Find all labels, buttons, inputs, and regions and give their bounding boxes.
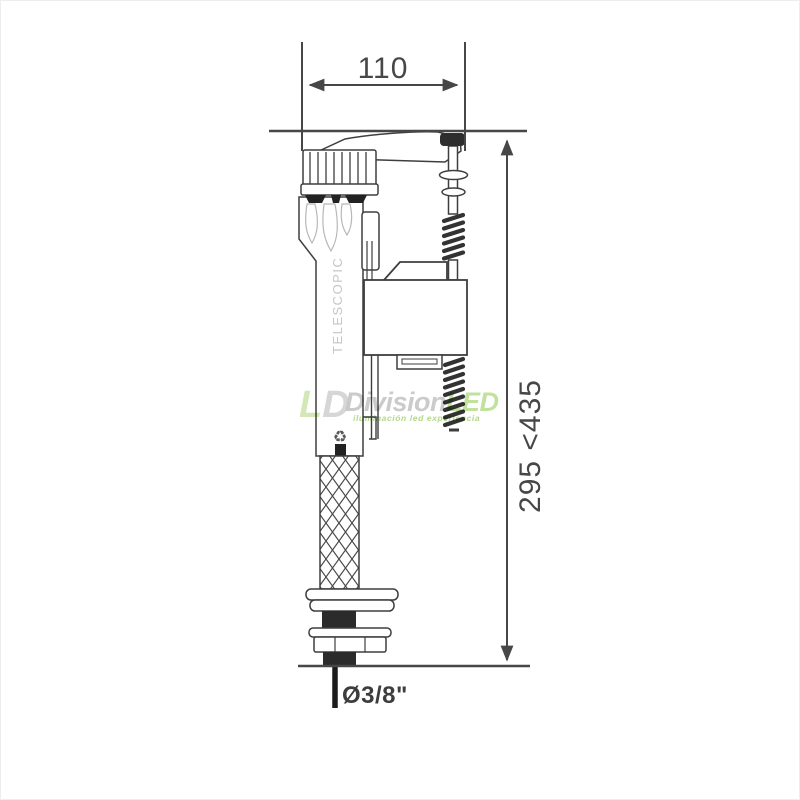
watermark-logo: LD <box>299 384 350 426</box>
watermark-logo-l: L <box>299 384 322 426</box>
height-dimension-label: 295 <435 <box>514 379 547 513</box>
inlet-diameter-label: Ø3/8" <box>342 682 408 709</box>
lock-nut <box>314 637 386 652</box>
cap-seal-marks <box>305 195 367 203</box>
float-cup-chamfer <box>384 262 447 280</box>
telescopic-thread <box>320 456 359 589</box>
flange-upper <box>306 589 398 600</box>
tube-brand-text: TELESCOPIC <box>330 257 345 354</box>
float-cup <box>364 280 467 355</box>
recycle-icon: ♻ <box>333 429 347 446</box>
side-bracket <box>362 212 379 270</box>
inlet-base-dark <box>323 652 356 666</box>
watermark-tagline: iluminación led experiencia <box>353 413 480 423</box>
screw-head <box>440 133 465 146</box>
screw-washer-upper <box>440 171 468 180</box>
seal-washer <box>309 628 391 637</box>
spring-link <box>449 260 458 280</box>
shank-dark <box>322 611 356 628</box>
cap-rim <box>301 184 378 195</box>
screw-washer-lower <box>442 188 465 196</box>
spring-upper <box>444 215 463 259</box>
flange-lower <box>310 600 394 611</box>
tube-port <box>335 444 346 456</box>
cup-tab <box>397 355 442 369</box>
valve-cap <box>303 150 376 186</box>
fill-valve-technical-drawing: TELESCOPIC ♻ <box>1 1 800 800</box>
width-dimension-label: 110 <box>358 52 409 85</box>
watermark: LD DivisionLED iluminación led experienc… <box>299 384 499 426</box>
diagram-canvas: TELESCOPIC ♻ <box>0 0 800 800</box>
